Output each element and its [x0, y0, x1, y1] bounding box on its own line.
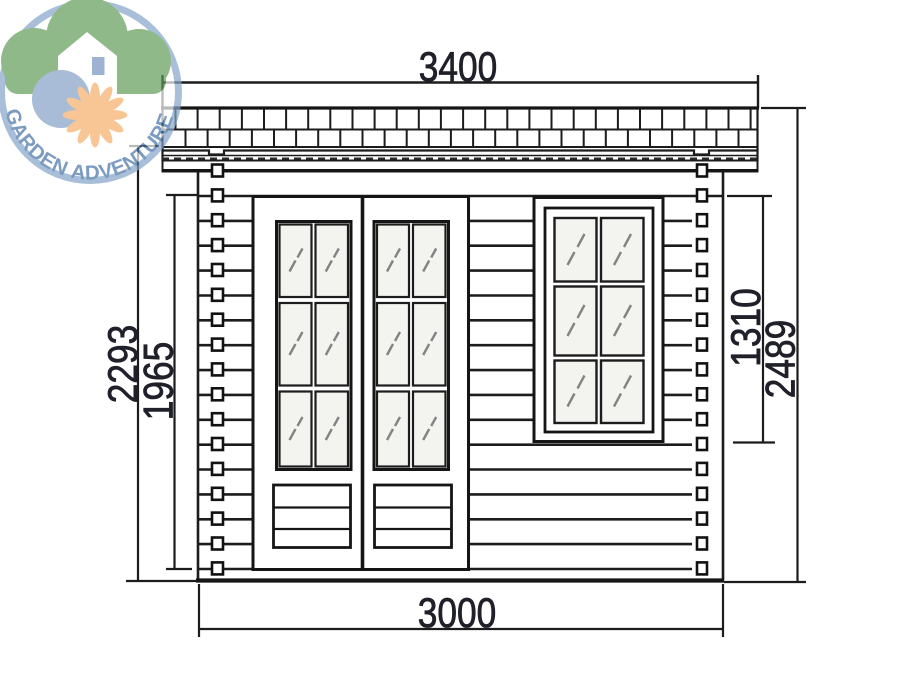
svg-text:3400: 3400: [419, 44, 497, 91]
svg-text:1965: 1965: [136, 342, 183, 420]
svg-text:3000: 3000: [418, 590, 496, 637]
svg-text:2489: 2489: [758, 320, 805, 398]
